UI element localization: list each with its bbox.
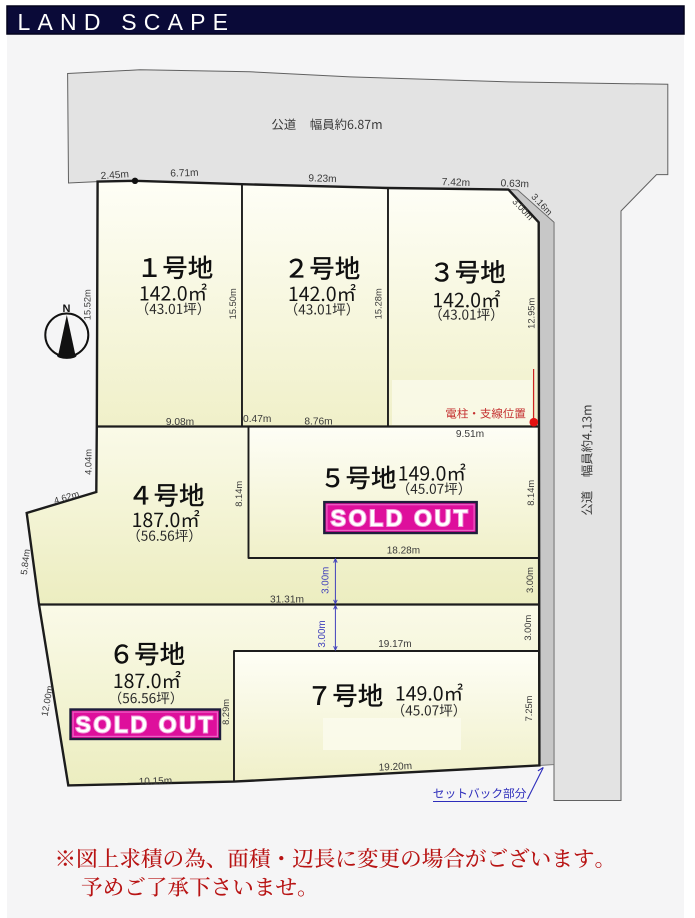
svg-text:9.23m: 9.23m <box>308 173 337 185</box>
svg-text:9.51m: 9.51m <box>456 429 484 440</box>
svg-text:N: N <box>63 303 71 315</box>
svg-text:8.14m: 8.14m <box>526 480 536 506</box>
svg-text:8.29m: 8.29m <box>221 699 231 725</box>
svg-text:SOLD OUT: SOLD OUT <box>75 712 215 738</box>
svg-text:0.47m: 0.47m <box>243 414 271 425</box>
svg-text:31.31m: 31.31m <box>270 595 304 606</box>
svg-text:12.95m: 12.95m <box>527 298 537 329</box>
svg-text:4.04m: 4.04m <box>83 449 93 475</box>
svg-text:7.42m: 7.42m <box>442 177 471 189</box>
svg-text:2.45m: 2.45m <box>100 169 129 182</box>
svg-text:15.52m: 15.52m <box>82 289 92 320</box>
svg-text:3.00m: 3.00m <box>321 567 332 594</box>
svg-text:15.50m: 15.50m <box>228 288 238 319</box>
svg-text:LAND SCAPE: LAND SCAPE <box>18 9 236 35</box>
svg-text:8.76m: 8.76m <box>304 416 332 427</box>
svg-text:8.14m: 8.14m <box>234 481 244 507</box>
svg-text:18.28m: 18.28m <box>387 546 420 557</box>
svg-text:7.25m: 7.25m <box>524 695 534 721</box>
svg-text:19.20m: 19.20m <box>378 761 412 774</box>
svg-text:3.00m: 3.00m <box>523 615 533 641</box>
svg-text:0.63m: 0.63m <box>500 178 529 190</box>
svg-text:6.71m: 6.71m <box>170 168 199 180</box>
svg-text:15.28m: 15.28m <box>374 288 384 319</box>
svg-text:SOLD OUT: SOLD OUT <box>331 505 471 531</box>
svg-text:3.00m: 3.00m <box>525 567 535 593</box>
svg-text:9.08m: 9.08m <box>166 417 194 428</box>
svg-text:10.15m: 10.15m <box>139 776 173 788</box>
svg-text:3.00m: 3.00m <box>317 620 328 647</box>
svg-text:19.17m: 19.17m <box>378 639 411 650</box>
